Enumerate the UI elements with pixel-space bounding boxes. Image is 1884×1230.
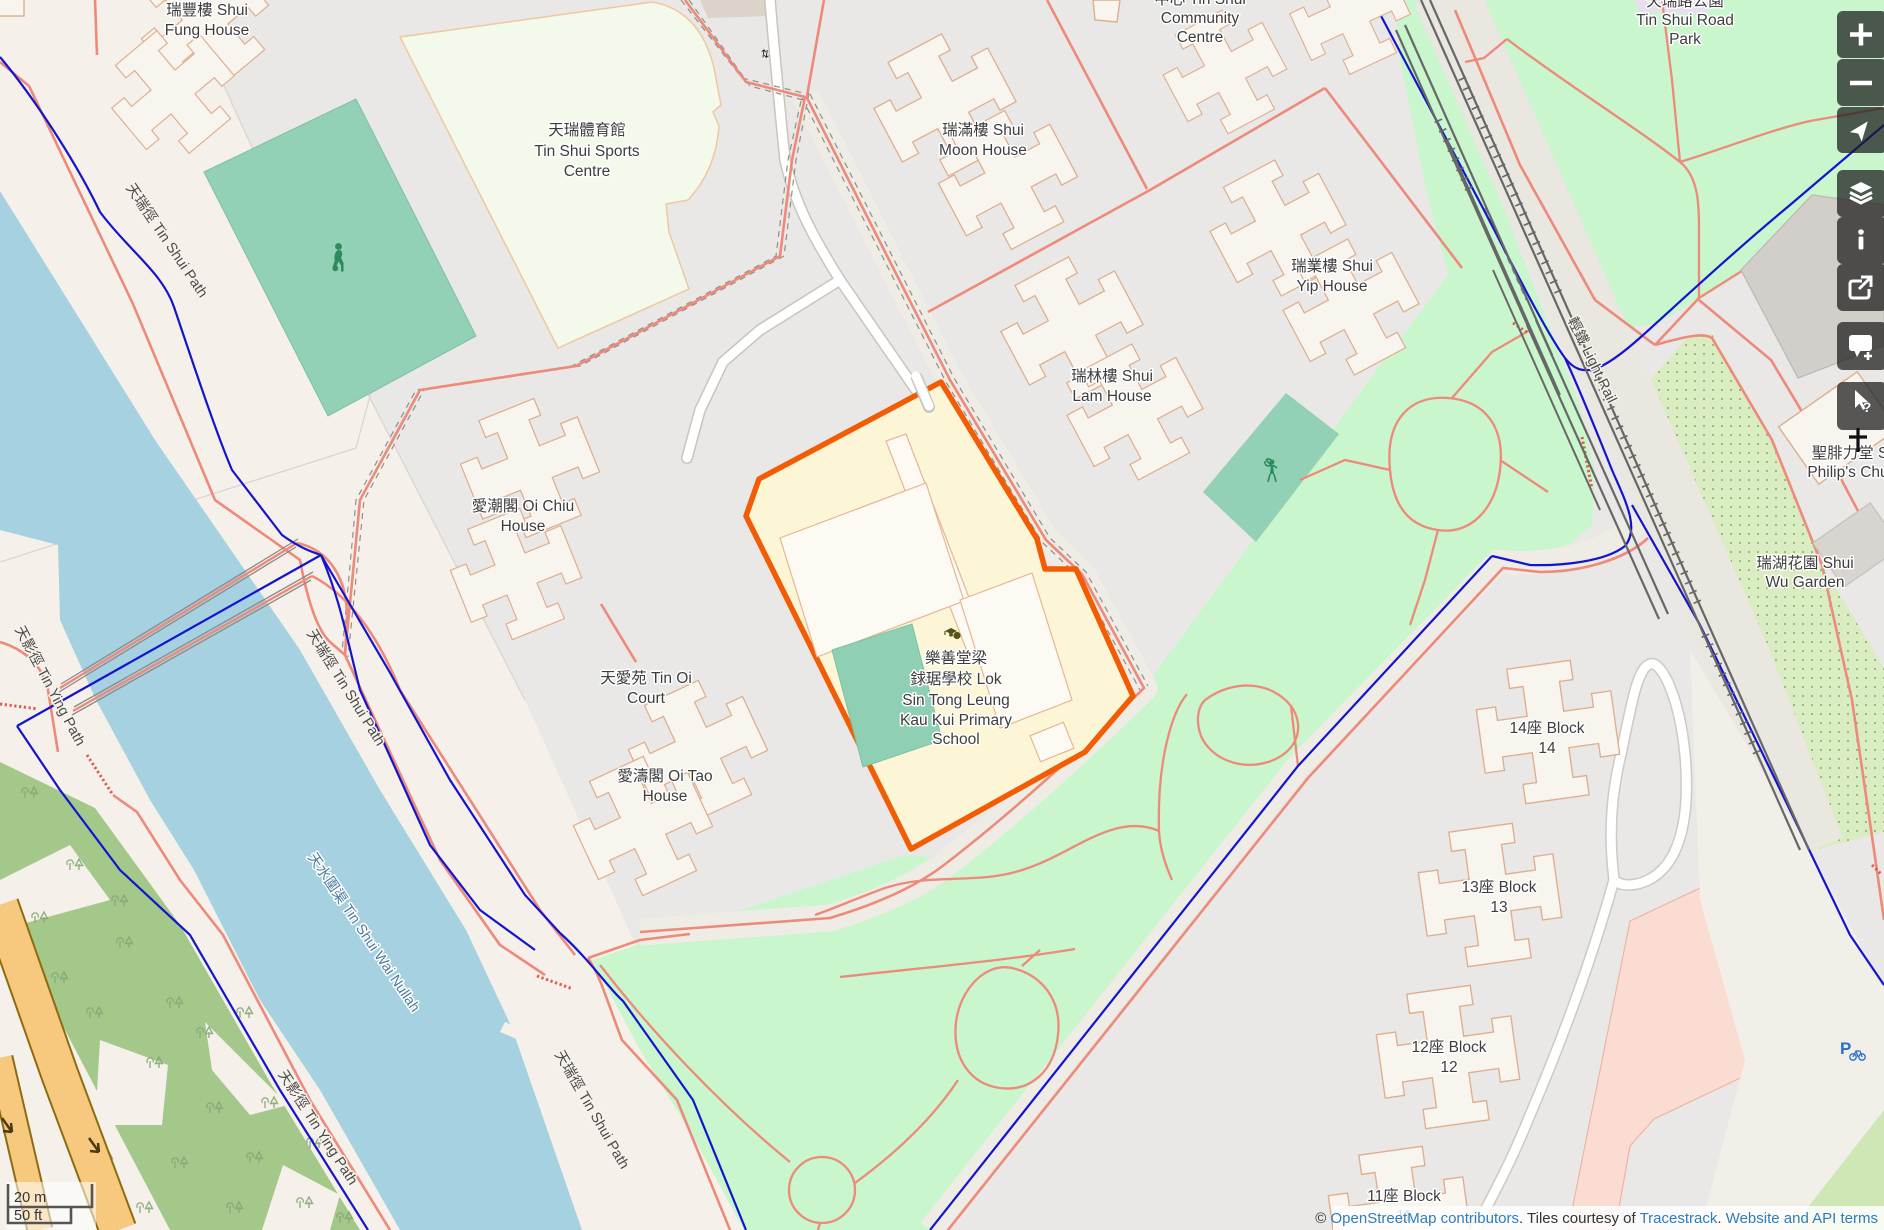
svg-text:Moon House: Moon House: [939, 142, 1027, 159]
svg-text:12座 Block: 12座 Block: [1412, 1038, 1487, 1056]
svg-text:14座 Block: 14座 Block: [1510, 719, 1585, 737]
svg-text:20 m: 20 m: [14, 1190, 46, 1206]
svg-text:瑞湖花園 Shui: 瑞湖花園 Shui: [1756, 554, 1853, 572]
svg-text:© OpenStreetMap contributors.: © OpenStreetMap contributors. Tiles cour…: [1315, 1210, 1878, 1227]
svg-text:Centre: Centre: [1177, 29, 1224, 46]
svg-text:11座 Block: 11座 Block: [1367, 1187, 1441, 1205]
svg-text:天瑞路公園: 天瑞路公園: [1646, 0, 1724, 10]
svg-text:瑞滿樓 Shui: 瑞滿樓 Shui: [942, 121, 1024, 139]
svg-text:天愛苑 Tin Oi: 天愛苑 Tin Oi: [600, 669, 692, 687]
svg-text:愛潮閣 Oi Chiu: 愛潮閣 Oi Chiu: [472, 497, 575, 515]
svg-text:Centre: Centre: [564, 163, 611, 180]
svg-text:Court: Court: [627, 690, 666, 707]
svg-text:聖腓力堂 S: 聖腓力堂 S: [1812, 444, 1884, 462]
svg-text:銶琚學校 Lok: 銶琚學校 Lok: [910, 669, 1002, 688]
svg-text:?: ?: [1863, 399, 1872, 415]
svg-text:Fung House: Fung House: [165, 22, 249, 39]
svg-text:瑞林樓 Shui: 瑞林樓 Shui: [1071, 367, 1153, 385]
svg-text:School: School: [932, 731, 979, 748]
svg-text:瑞業樓 Shui: 瑞業樓 Shui: [1291, 257, 1373, 275]
svg-text:12: 12: [1440, 1059, 1457, 1076]
svg-text:Sin Tong Leung: Sin Tong Leung: [902, 692, 1009, 709]
svg-text:Kau Kui Primary: Kau Kui Primary: [900, 712, 1012, 729]
svg-text:Lam House: Lam House: [1072, 388, 1151, 405]
svg-text:Tin Shui Sports: Tin Shui Sports: [534, 143, 640, 160]
svg-text:Yip House: Yip House: [1297, 278, 1368, 295]
svg-text:Philip's Chu: Philip's Chu: [1807, 464, 1884, 481]
svg-text:⇅: ⇅: [760, 48, 771, 61]
svg-text:瑞豐樓 Shui: 瑞豐樓 Shui: [166, 1, 248, 19]
svg-text:13座 Block: 13座 Block: [1462, 878, 1537, 896]
svg-text:中心 Tin Shui: 中心 Tin Shui: [1154, 0, 1246, 8]
svg-text:Tin Shui Road: Tin Shui Road: [1636, 12, 1734, 29]
svg-text:Park: Park: [1669, 31, 1701, 48]
svg-text:House: House: [501, 518, 546, 535]
svg-text:50 ft: 50 ft: [14, 1208, 42, 1224]
svg-text:樂善堂梁: 樂善堂梁: [925, 649, 987, 667]
svg-text:愛濤閣 Oi Tao: 愛濤閣 Oi Tao: [617, 767, 712, 785]
svg-text:House: House: [643, 788, 688, 805]
svg-text:13: 13: [1490, 899, 1507, 916]
svg-text:Wu Garden: Wu Garden: [1766, 574, 1845, 591]
svg-text:天瑞體育館: 天瑞體育館: [548, 121, 626, 139]
svg-text:Community: Community: [1161, 10, 1240, 27]
svg-text:14: 14: [1538, 740, 1556, 757]
